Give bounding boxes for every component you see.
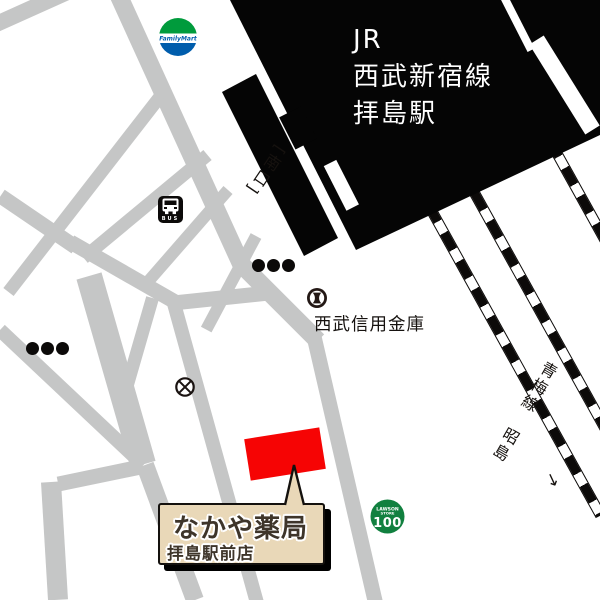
crosswalk-dot: [282, 259, 295, 272]
bus-glyph: [158, 196, 183, 215]
police-box-icon: [174, 376, 196, 398]
station-name-line2: 西武新宿線: [353, 59, 493, 96]
station-name-line1: JR: [353, 22, 493, 59]
crosswalk-dot: [267, 259, 280, 272]
lawson-100-icon: LAWSON STORE 100: [369, 498, 406, 535]
bank-icon: [306, 287, 328, 309]
familymart-text: FamilyMart: [159, 35, 198, 42]
crosswalk-dot: [56, 342, 69, 355]
lawson-text-line2: STORE: [380, 511, 394, 516]
destination-callout[interactable]: なかや薬局 拝島駅前店: [158, 503, 325, 565]
station-name-line3: 拝島駅: [353, 96, 493, 133]
station-area-map: JR 西武新宿線 拝島駅 [南口] FamilyMart: [0, 0, 600, 600]
road-segment: [3, 92, 165, 296]
bank-label: 西武信用金庫: [314, 311, 425, 336]
station-name: JR 西武新宿線 拝島駅: [353, 22, 493, 133]
bus-stop-icon: BUS: [158, 196, 183, 223]
direction-arrow: →: [540, 469, 564, 490]
familymart-icon: FamilyMart: [158, 17, 198, 57]
lawson-text-line3: 100: [373, 516, 402, 531]
road-segment: [41, 481, 68, 600]
bus-label: BUS: [158, 216, 183, 222]
callout-pointer: [278, 462, 312, 510]
pharmacy-branch: 拝島駅前店: [167, 540, 255, 564]
crosswalk-dot: [252, 259, 265, 272]
crosswalk-dot: [41, 342, 54, 355]
road-segment: [0, 0, 75, 33]
road-segment: [56, 460, 141, 492]
crosswalk-dot: [26, 342, 39, 355]
